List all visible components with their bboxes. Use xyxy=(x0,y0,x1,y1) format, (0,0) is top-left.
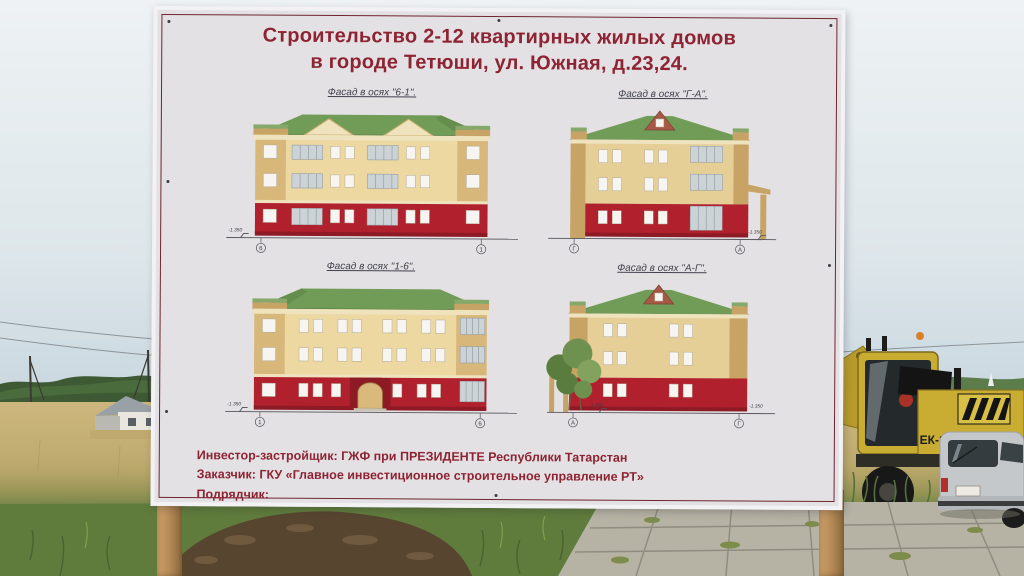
facade-drawing-g-a: -1.350 Г А xyxy=(542,102,783,261)
facade-panel-1-6: Фасад в осях "1-6". xyxy=(217,260,524,438)
facade-drawing-1-6: -1.350 1 6 xyxy=(217,274,524,434)
axis-label: Г xyxy=(737,422,741,428)
footer-contractor-line: Подрядчик: xyxy=(196,485,643,507)
axis-label: Г xyxy=(572,247,576,253)
entrance-door xyxy=(358,383,383,409)
facade-label: Фасад в осях "А-Г". xyxy=(542,262,782,277)
facade-label: Фасад в осях "Г-А". xyxy=(543,88,783,103)
elevation-mark: -1.350 xyxy=(228,227,242,233)
footer-customer-line: Заказчик: ГКУ «Главное инвестиционное ст… xyxy=(197,466,644,488)
facade-panel-6-1: Фасад в осях "6-1". xyxy=(218,86,525,264)
facade-drawing-6-1: -1.350 6 1 xyxy=(218,100,525,260)
car-side-window xyxy=(1000,442,1023,463)
axis-label: А xyxy=(738,248,742,254)
license-plate xyxy=(956,486,980,496)
axis-label: 6 xyxy=(259,245,263,252)
facade-drawing-a-g: -1.350 -1.350 А Г xyxy=(541,276,782,435)
axis-label: А xyxy=(571,421,575,427)
title-line2: в городе Тетюши, ул. Южная, д.23,24. xyxy=(157,48,841,78)
beacon-light xyxy=(916,332,924,340)
elevation-mark: -1.350 xyxy=(227,401,241,407)
facade-panel-a-g: Фасад в осях "А-Г". xyxy=(541,262,782,439)
car xyxy=(938,432,1024,528)
axis-label: 6 xyxy=(478,420,482,427)
billboard-post-left xyxy=(157,496,182,576)
axis-label: 1 xyxy=(479,246,483,253)
board-footer: Инвестор-застройщик: ГЖФ при ПРЕЗИДЕНТЕ … xyxy=(196,446,644,507)
board-title: Строительство 2-12 квартирных жилых домо… xyxy=(157,22,841,78)
screw-dot xyxy=(828,264,831,267)
elevation-mark: -1.350 xyxy=(589,403,603,409)
screw-dot xyxy=(166,180,169,183)
photo-scene: ЕК-14 xyxy=(0,0,1024,576)
operator xyxy=(899,393,913,407)
facade-panel-g-a: Фасад в осях "Г-А". xyxy=(542,88,783,265)
elevation-mark: -1.350 xyxy=(749,404,763,410)
construction-billboard: Строительство 2-12 квартирных жилых домо… xyxy=(150,6,845,510)
screw-dot xyxy=(165,410,168,413)
taillight xyxy=(941,478,948,492)
screw-dot xyxy=(497,19,500,22)
elevation-mark: -1.350 xyxy=(748,230,762,236)
axis-label: 1 xyxy=(258,419,262,426)
